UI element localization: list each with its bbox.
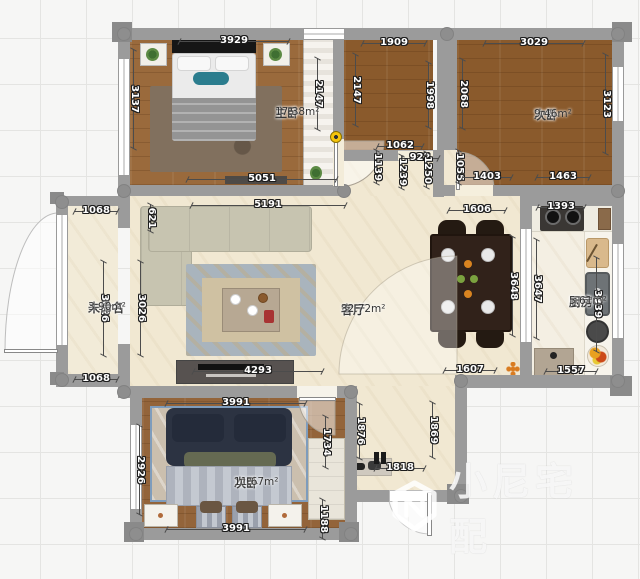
balcony-door-arc xyxy=(5,213,58,351)
tv-screen xyxy=(198,364,264,370)
wall-hallway-right xyxy=(433,150,444,197)
plant-icon xyxy=(146,48,159,61)
boots-icon xyxy=(381,452,386,464)
master-media-bench xyxy=(225,176,287,184)
wall-storage-bedroom-divider xyxy=(437,40,457,150)
plate-icon xyxy=(247,305,258,316)
knob-dot xyxy=(158,513,163,518)
knob-dot xyxy=(282,513,287,518)
boots-icon xyxy=(374,452,379,464)
master-bed-headboard xyxy=(172,40,256,53)
plant-icon xyxy=(310,166,322,180)
closet-divider-line xyxy=(303,40,304,185)
window-top-closet xyxy=(303,28,345,40)
wall-junction xyxy=(117,184,131,198)
floor-balcony xyxy=(68,206,118,374)
door-gap-storage xyxy=(398,150,433,161)
dining-chair xyxy=(476,330,504,348)
wall-junction xyxy=(129,527,143,541)
wall-top xyxy=(118,28,624,40)
window-kitchen-right xyxy=(612,243,624,339)
dining-table xyxy=(430,234,512,332)
kitchen-cabinet-small xyxy=(598,208,611,230)
pot-icon xyxy=(586,320,609,343)
floor-storage-room xyxy=(344,40,433,150)
window-master-left xyxy=(118,58,130,176)
door-hinge-marker xyxy=(330,131,342,143)
washer-dot xyxy=(550,352,557,359)
wall-bedroom-bottom-right xyxy=(345,390,357,540)
food-dot xyxy=(464,290,472,298)
floral-pillow xyxy=(236,501,258,513)
sofa-main xyxy=(148,206,312,252)
plate-icon xyxy=(441,300,455,314)
plate-icon xyxy=(258,293,268,303)
fruit-bowl-icon xyxy=(587,345,609,367)
window-balcony-left xyxy=(56,214,68,346)
floor-plan-canvas: 3929190930293137214721471998206831235051… xyxy=(0,0,640,579)
wall-bedroom-bottom-bottom xyxy=(130,528,357,540)
window-bedroom-tr-right xyxy=(612,66,624,122)
master-pillow-right xyxy=(215,56,249,71)
wall-junction xyxy=(344,385,358,399)
window-bedroom-bottom-left xyxy=(130,424,142,510)
wall-junction xyxy=(55,195,69,209)
wall-junction xyxy=(55,373,69,387)
wall-junction xyxy=(344,527,358,541)
wall-master-bottom xyxy=(118,185,345,196)
flower-marker xyxy=(506,362,520,376)
wall-junction xyxy=(611,27,625,41)
door-leaf-balcony xyxy=(4,349,58,353)
door-gap-bedroom-tr xyxy=(455,185,493,196)
wall-kitchen-bottom xyxy=(455,375,624,388)
master-accent-pillow xyxy=(193,72,229,85)
wall-junction xyxy=(440,27,454,41)
food-dot xyxy=(464,260,472,268)
tray-icon xyxy=(264,310,274,323)
cube-n-logo-icon xyxy=(388,479,441,533)
master-blanket xyxy=(172,98,256,141)
wardrobe xyxy=(308,438,345,520)
tv-soundbar xyxy=(206,374,256,377)
door-leaf-master xyxy=(334,141,338,187)
wall-master-storage-divider xyxy=(333,40,344,141)
wall-junction xyxy=(117,385,131,399)
navy-pillow xyxy=(234,414,286,442)
glass-door-kitchen xyxy=(520,228,532,343)
door-leaf-bedroom-bottom xyxy=(299,397,336,401)
wall-entry-bottom-left xyxy=(345,490,389,502)
wall-junction xyxy=(611,184,625,198)
floral-pillow xyxy=(200,501,222,513)
watermark: 小尼宅配 xyxy=(388,466,618,546)
wall-living-left-stub-top xyxy=(118,196,130,228)
floor-master-closet xyxy=(303,40,333,185)
wall-storage-bottom xyxy=(344,150,402,161)
plate-icon xyxy=(481,248,495,262)
food-dot xyxy=(470,275,478,283)
plate-icon xyxy=(441,248,455,262)
bottom-bed-blanket xyxy=(166,466,292,506)
faucet-icon xyxy=(594,288,601,295)
watermark-text: 小尼宅配 xyxy=(449,451,618,561)
burner-icon xyxy=(545,209,561,225)
dining-chair xyxy=(438,330,466,348)
plate-icon xyxy=(481,300,495,314)
wall-junction xyxy=(337,184,351,198)
navy-pillow xyxy=(172,414,224,442)
floor-bedroom-top-right xyxy=(457,40,612,185)
wall-junction xyxy=(611,374,625,388)
wall-bedroom-tr-bottom xyxy=(492,185,612,196)
master-pillow-left xyxy=(177,56,211,71)
food-dot xyxy=(457,275,465,283)
wall-kitchen-stub-top xyxy=(520,196,532,228)
plant-icon xyxy=(269,48,282,61)
wall-kitchen-top xyxy=(532,196,624,206)
burner-icon xyxy=(565,209,581,225)
wall-junction xyxy=(454,374,468,388)
plate-icon xyxy=(230,294,241,305)
door-leaf-bedroom-tr xyxy=(456,152,460,190)
wall-junction xyxy=(117,27,131,41)
